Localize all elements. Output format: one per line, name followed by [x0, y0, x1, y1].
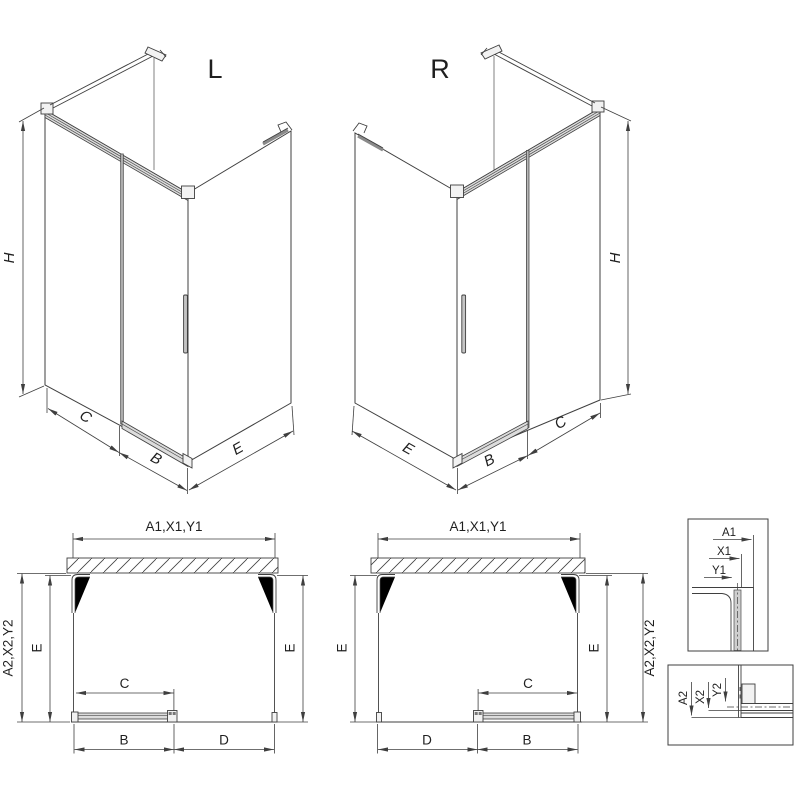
- wall-cap-right: [574, 712, 581, 722]
- dim-label-depth-right: E: [283, 643, 298, 652]
- wall-section: [371, 558, 585, 573]
- plan-view-right: A1,X1,Y1 E: [335, 519, 658, 754]
- dim-c: C: [478, 676, 577, 711]
- dim-label-width: A1,X1,Y1: [145, 519, 202, 534]
- dim-label-c: C: [552, 413, 570, 433]
- dim-label-a1: A1: [722, 527, 736, 539]
- dim-height: H: [601, 107, 631, 400]
- wall-profile-left: [72, 575, 90, 719]
- detail-box-top: A1 X1 Y1: [688, 519, 768, 651]
- dim-label-b: B: [119, 733, 128, 748]
- dim-label-x1: X1: [717, 546, 731, 558]
- dim-label-b: B: [148, 449, 165, 469]
- detail-box-bottom: A2 X2 Y2: [668, 665, 793, 745]
- wall-profile-right: [258, 575, 276, 719]
- door-handle: [184, 295, 188, 353]
- iso-view-right: R H: [352, 45, 631, 494]
- dim-c: C: [76, 676, 174, 711]
- door-edge: [121, 154, 124, 424]
- wall-cap-left: [72, 712, 79, 722]
- dim-label-a2: A2: [678, 691, 690, 705]
- plan-view-left: A1,X1,Y1: [1, 519, 309, 754]
- corner-cap-left: [377, 713, 382, 723]
- door-panel: [75, 713, 174, 719]
- dim-label-e: E: [400, 439, 418, 459]
- dim-label-d: D: [219, 733, 229, 748]
- side-glass-panel: [188, 131, 291, 462]
- door-panel: [478, 713, 577, 719]
- dim-height: H: [1, 108, 44, 397]
- corner-cap-right: [272, 713, 277, 723]
- dim-label-d: D: [422, 733, 432, 748]
- dim-label-c: C: [120, 676, 130, 691]
- dim-label-width: A1,X1,Y1: [449, 519, 506, 534]
- door-handle: [462, 295, 466, 353]
- dim-label-y1: Y1: [712, 565, 726, 577]
- dim-width: [73, 533, 275, 558]
- rail-bracket: [742, 684, 755, 704]
- dim-label-h: H: [1, 252, 18, 263]
- dim-label-depth-left: E: [30, 643, 45, 652]
- dim-b-d: B D: [74, 724, 275, 754]
- dim-depth-left: E: [30, 576, 72, 723]
- dim-label-e: E: [229, 439, 247, 459]
- iso-view-left: L: [1, 47, 294, 494]
- dim-label-b: B: [522, 733, 531, 748]
- dim-d-b: D B: [378, 724, 579, 754]
- dim-label-c: C: [76, 407, 94, 427]
- corner-fitting: [451, 185, 464, 198]
- side-glass-panel: [355, 133, 457, 460]
- dim-depth-right: E: [579, 576, 612, 723]
- front-glass-panel: [45, 110, 188, 462]
- dim-label-h: H: [607, 252, 624, 263]
- wall-profile-right: [561, 575, 579, 719]
- drawing-canvas: L: [0, 0, 800, 800]
- dim-label-y2: Y2: [712, 683, 724, 697]
- dim-label-depth-left: E: [335, 643, 350, 652]
- corner-fitting: [182, 186, 195, 199]
- dim-label-x2: X2: [695, 690, 707, 704]
- dim-label-depth-outer: A2,X2,Y2: [642, 619, 657, 676]
- wall-profile-left: [377, 575, 395, 719]
- dim-depth-left: E: [335, 576, 378, 723]
- dim-label-c: C: [523, 676, 533, 691]
- wall-section: [67, 558, 278, 573]
- dim-label-depth-right: E: [587, 643, 602, 652]
- dim-label-depth-outer: A2,X2,Y2: [1, 619, 16, 676]
- dim-width: [378, 533, 580, 558]
- door-edge: [526, 151, 529, 428]
- view-title-right: R: [430, 54, 450, 84]
- dim-depth-right: E: [277, 576, 308, 723]
- dim-label-b: B: [481, 451, 497, 471]
- view-title-left: L: [207, 54, 222, 84]
